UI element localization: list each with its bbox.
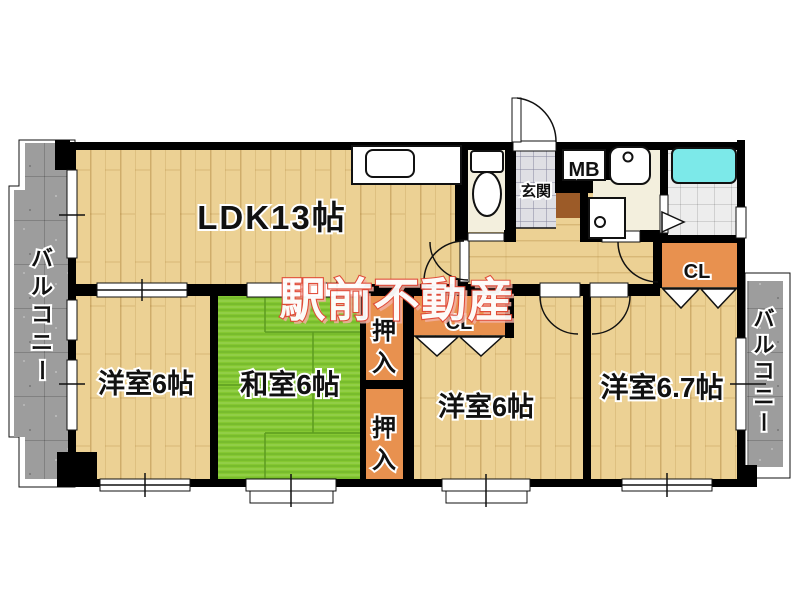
washroom-sink bbox=[610, 147, 650, 184]
toilet-door-leaf bbox=[468, 233, 504, 241]
svg-text:入: 入 bbox=[372, 350, 396, 377]
label-balcony-left: バ ル コ ニ ー bbox=[29, 246, 54, 381]
bed-center-door-opening bbox=[540, 283, 580, 297]
kitchen-sink bbox=[366, 150, 414, 177]
entry-door-leaf bbox=[512, 98, 521, 142]
svg-text:入: 入 bbox=[372, 447, 396, 474]
label-bed-right: 洋室6.7帖 bbox=[601, 371, 724, 403]
bathtub bbox=[672, 148, 736, 183]
svg-text:ニ: ニ bbox=[31, 330, 53, 355]
svg-text:バ: バ bbox=[754, 308, 775, 331]
svg-text:バ: バ bbox=[31, 246, 53, 271]
floor-plan-canvas: LDK13帖 洋室6帖 和室6帖 洋室6帖 洋室6.7帖 玄関 MB CL CL… bbox=[0, 0, 800, 600]
floor-plan: LDK13帖 洋室6帖 和室6帖 洋室6帖 洋室6.7帖 玄関 MB CL CL… bbox=[0, 0, 800, 600]
label-genkan: 玄関 bbox=[521, 182, 551, 200]
label-mb: MB bbox=[568, 159, 599, 181]
kitchen-counter bbox=[352, 146, 461, 184]
svg-text:ー: ー bbox=[29, 359, 54, 381]
label-bed-left: 洋室6帖 bbox=[98, 368, 194, 399]
label-closet-right: CL bbox=[684, 261, 711, 283]
label-washitsu: 和室6帖 bbox=[240, 368, 340, 400]
genkan-step bbox=[556, 193, 580, 218]
svg-text:コ: コ bbox=[31, 302, 53, 327]
svg-text:ー: ー bbox=[751, 412, 774, 433]
toilet-fixture bbox=[471, 151, 503, 216]
watermark: 駅前不動産 駅前不動産 bbox=[280, 274, 518, 329]
svg-text:押: 押 bbox=[372, 415, 396, 442]
washing-machine-pan bbox=[589, 198, 625, 238]
svg-text:ル: ル bbox=[754, 334, 775, 357]
watermark-text: 駅前不動産 bbox=[280, 274, 515, 326]
svg-text:コ: コ bbox=[754, 360, 775, 383]
svg-text:ニ: ニ bbox=[754, 386, 775, 409]
label-balcony-right: バ ル コ ニ ー bbox=[751, 308, 775, 433]
entry-door-arc bbox=[517, 98, 556, 142]
label-bed-center: 洋室6帖 bbox=[438, 391, 534, 422]
label-ldk: LDK13帖 bbox=[197, 199, 347, 236]
bed-right-door-opening bbox=[590, 283, 628, 297]
svg-text:ル: ル bbox=[31, 274, 53, 299]
